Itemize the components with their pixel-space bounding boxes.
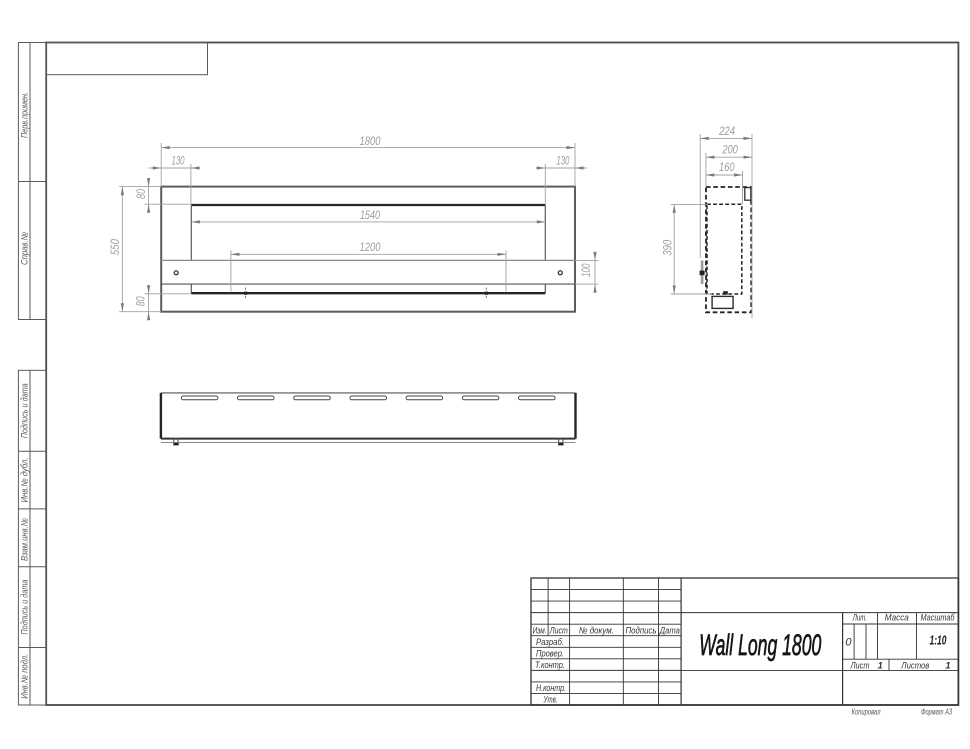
svg-text:Инв.№ дубл.: Инв.№ дубл.: [20, 458, 30, 503]
svg-text:1: 1: [878, 660, 883, 670]
svg-text:Подпись и дата: Подпись и дата: [20, 580, 30, 635]
svg-text:Лит.: Лит.: [852, 613, 867, 623]
svg-text:Провер.: Провер.: [536, 648, 564, 658]
svg-text:Масштаб: Масштаб: [921, 613, 956, 623]
svg-text:200: 200: [722, 144, 739, 156]
svg-text:130: 130: [172, 156, 185, 168]
svg-text:Подпись и дата: Подпись и дата: [20, 383, 30, 438]
svg-text:Изм.: Изм.: [533, 625, 547, 635]
svg-text:Подпись: Подпись: [626, 625, 657, 635]
svg-text:Т.контр.: Т.контр.: [535, 660, 565, 670]
svg-text:Инв.№ подл.: Инв.№ подл.: [20, 654, 30, 699]
svg-text:130: 130: [556, 156, 569, 168]
svg-text:Листов: Листов: [900, 660, 929, 670]
svg-text:1200: 1200: [360, 242, 381, 254]
svg-text:Разраб.: Разраб.: [536, 637, 564, 647]
svg-text:1: 1: [945, 660, 950, 670]
svg-text:Формат А3: Формат А3: [921, 707, 952, 717]
svg-text:Утв.: Утв.: [543, 695, 558, 705]
svg-text:100: 100: [581, 263, 593, 277]
svg-text:Дата: Дата: [659, 625, 680, 635]
svg-text:1540: 1540: [360, 210, 380, 222]
svg-text:1800: 1800: [360, 136, 381, 148]
svg-text:80: 80: [136, 189, 148, 199]
svg-text:Лист: Лист: [549, 625, 568, 635]
svg-text:550: 550: [110, 239, 122, 256]
svg-text:160: 160: [719, 162, 735, 174]
svg-text:№ докум.: № докум.: [579, 625, 614, 635]
svg-text:Лист: Лист: [850, 660, 870, 670]
svg-text:Н.контр.: Н.контр.: [536, 683, 566, 693]
svg-text:Взам.инв.№: Взам.инв.№: [20, 518, 30, 561]
svg-text:80: 80: [135, 296, 147, 306]
svg-text:Wall Long 1800: Wall Long 1800: [699, 629, 821, 662]
svg-text:1:10: 1:10: [930, 633, 947, 648]
svg-text:0: 0: [845, 637, 852, 649]
svg-text:224: 224: [718, 126, 735, 138]
svg-text:Справ.№: Справ.№: [20, 232, 30, 265]
svg-text:Копировал: Копировал: [852, 707, 881, 717]
svg-text:Масса: Масса: [885, 613, 909, 623]
svg-text:390: 390: [662, 239, 674, 256]
svg-text:Перв.примен.: Перв.примен.: [20, 92, 30, 138]
